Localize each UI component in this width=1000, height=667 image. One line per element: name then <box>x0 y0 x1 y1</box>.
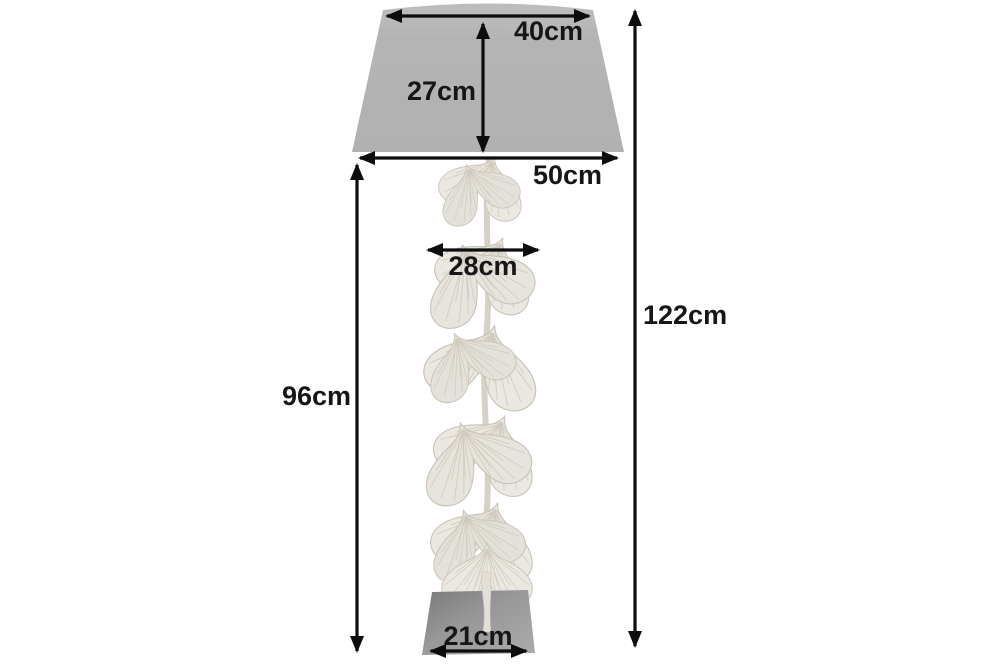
dimension-label-shade-top-width: 40cm <box>514 16 583 46</box>
dimension-label-leaf-column-width: 28cm <box>448 251 517 281</box>
dimension-label-shade-height: 27cm <box>407 76 476 106</box>
ginkgo-leaf-stand <box>409 142 553 605</box>
dimension-label-base-width: 21cm <box>443 621 512 651</box>
lampshade <box>352 4 624 153</box>
dimension-label-shade-bottom-width: 50cm <box>533 160 602 190</box>
dimension-label-total-height: 122cm <box>643 300 727 330</box>
dimension-label-stand-height: 96cm <box>282 381 351 411</box>
product-dimension-diagram: 40cm 27cm 50cm 28cm 96cm 122cm 21cm <box>0 0 1000 667</box>
diagram-canvas: 40cm 27cm 50cm 28cm 96cm 122cm 21cm <box>0 0 1000 667</box>
